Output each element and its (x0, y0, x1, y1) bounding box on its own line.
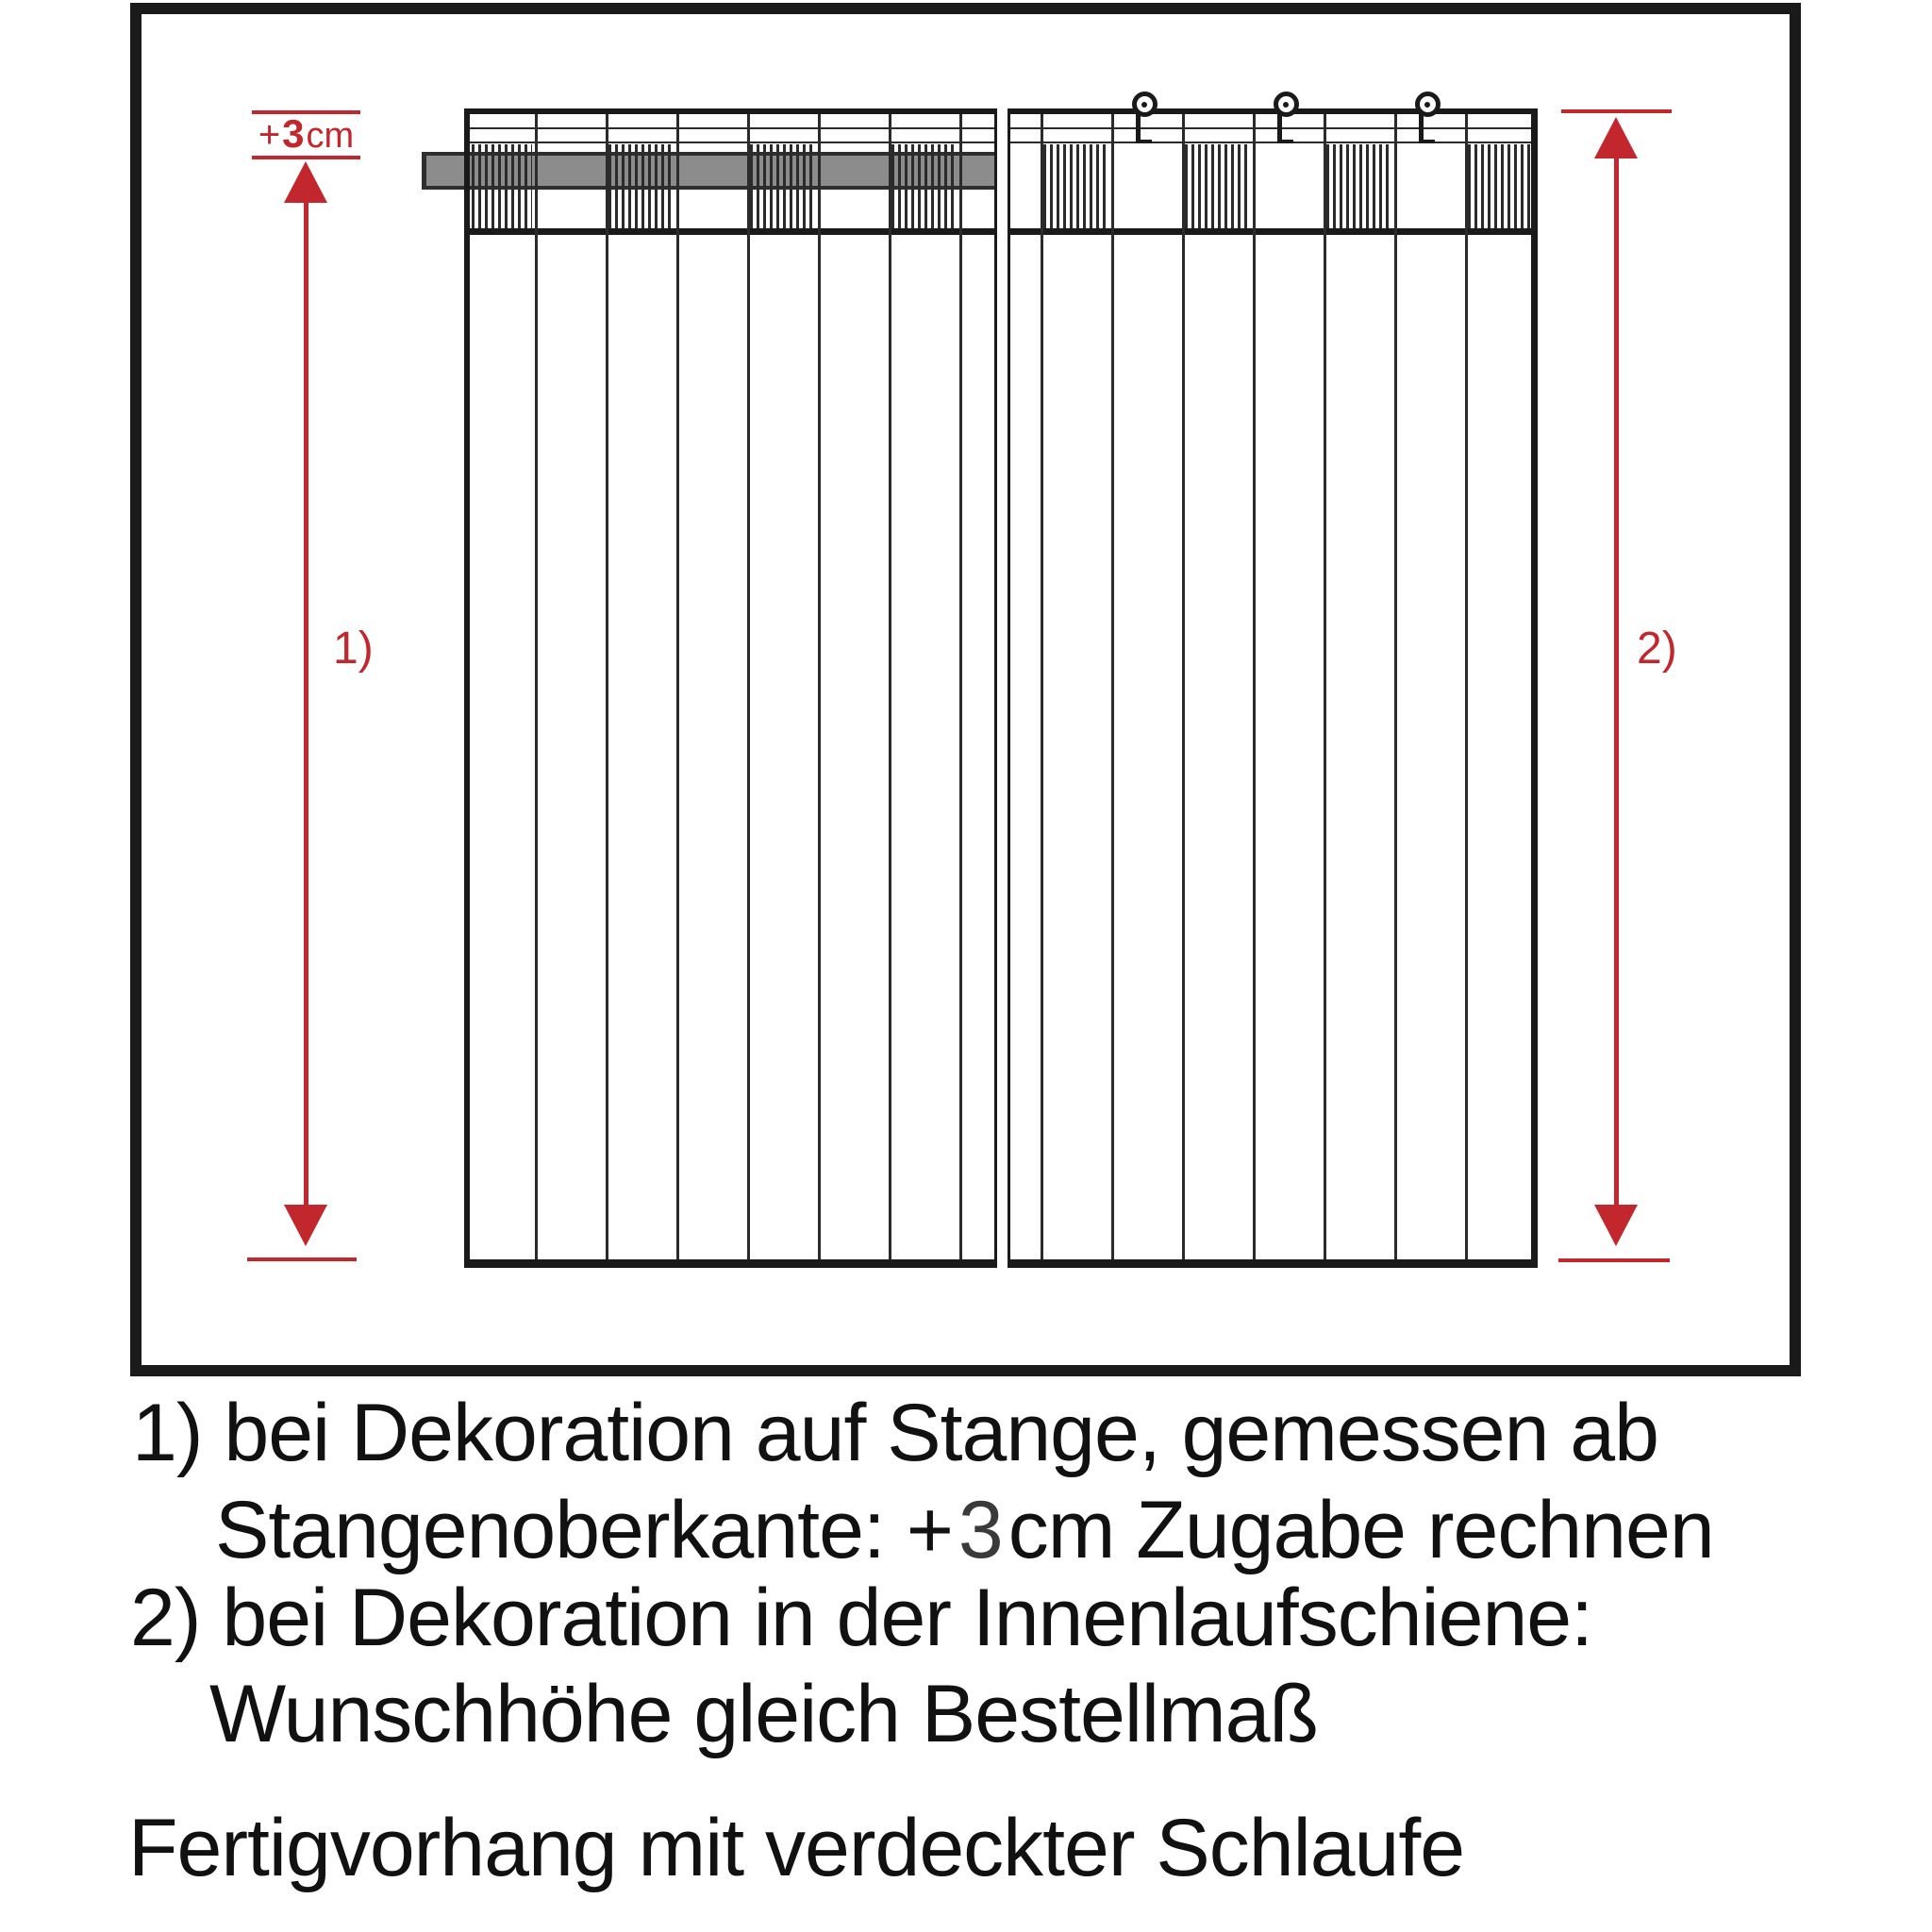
pleat-fold-line (606, 114, 608, 1259)
hidden-loop-hatch (750, 144, 815, 228)
header-seam-line (1008, 142, 1538, 143)
pleat-fold-line (1253, 114, 1256, 1259)
hidden-loop-hatch (608, 144, 674, 228)
pleat-fold-line (1111, 114, 1114, 1259)
header-seam-line (1008, 127, 1538, 129)
pleat-fold-line (1394, 114, 1397, 1259)
reference-line-curtain-top-right (1561, 109, 1672, 113)
header-bottom-seam (1008, 228, 1538, 235)
pleat-fold-line (1041, 114, 1043, 1259)
glider-stem (1136, 114, 1141, 142)
pleat-fold-line (889, 114, 891, 1259)
arrow1-shaft (304, 202, 308, 1206)
pleat-fold-line (676, 114, 679, 1259)
panel-outer-edge (1531, 108, 1538, 1268)
hidden-loop-hatch (891, 144, 957, 228)
pleat-fold-line (1182, 114, 1185, 1259)
hidden-loop-hatch (1326, 144, 1391, 228)
glider-foot (1277, 140, 1293, 143)
note-line-4: Wunschhöhe gleich Bestellmaß (209, 1670, 1318, 1759)
glider-foot (1419, 140, 1435, 143)
panel-top-edge (1008, 108, 1538, 114)
allowance-label: +3cm (252, 114, 360, 154)
glider-stem (1277, 114, 1282, 142)
pleat-fold-line (747, 114, 750, 1259)
panel-inner-edge (1008, 108, 1010, 1268)
hidden-loop-hatch (1468, 144, 1531, 228)
reference-line-hem-right (1558, 1258, 1670, 1262)
panel-inner-edge (994, 108, 997, 1268)
pleat-fold-line (1465, 114, 1468, 1259)
arrow2-head-down-icon (1594, 1205, 1638, 1246)
note-line-2-value: 3 (953, 1485, 1008, 1575)
note-line-2-suffix: cm Zugabe rechnen (1008, 1485, 1714, 1575)
glider-foot (1136, 140, 1152, 143)
pleat-fold-line (959, 114, 962, 1259)
pleat-fold-line (535, 114, 538, 1259)
note-line-1: 1) bei Dekoration auf Stange, gemessen a… (132, 1389, 1658, 1478)
panel-outer-edge (464, 108, 470, 1268)
curtain-measurement-diagram: +3cm 1) 2) 1) bei Dekoration auf Stange,… (0, 0, 1932, 1932)
glider-stem (1419, 114, 1424, 142)
arrow2-shaft (1614, 158, 1619, 1206)
hidden-loop-hatch (1043, 144, 1108, 228)
arrow1-head-down-icon (284, 1205, 327, 1246)
panel-top-edge (464, 108, 997, 114)
arrow1-head-up-icon (284, 161, 327, 203)
allowance-unit: cm (307, 116, 355, 156)
panel-bottom-hem (464, 1259, 997, 1268)
glider-dot-icon (1283, 102, 1289, 108)
pleat-fold-line (818, 114, 821, 1259)
glider-dot-icon (1141, 102, 1147, 108)
header-seam-line (464, 127, 997, 129)
arrow2-head-up-icon (1594, 117, 1638, 158)
note-line-2-prefix: Stangenoberkante: + (215, 1485, 953, 1575)
pleat-fold-line (1324, 114, 1326, 1259)
note-line-2: Stangenoberkante: +3cm Zugabe rechnen (215, 1486, 1714, 1575)
hidden-loop-hatch (1185, 144, 1250, 228)
header-seam-line (464, 142, 997, 143)
curtain-panel-right (1008, 108, 1538, 1268)
header-bottom-seam (464, 228, 997, 235)
hidden-loop-hatch (472, 144, 532, 228)
reference-line-hem-left (247, 1257, 357, 1261)
panel-bottom-hem (1008, 1259, 1538, 1268)
curtain-panel-left (464, 108, 997, 1268)
arrow1-label: 1) (333, 626, 374, 672)
allowance-value: 3 (280, 111, 306, 156)
allowance-plus: + (258, 114, 280, 156)
glider-dot-icon (1424, 102, 1430, 108)
arrow2-label: 2) (1637, 626, 1677, 672)
reference-line-rod-top (252, 156, 360, 159)
note-line-5: Fertigvorhang mit verdeckter Schlaufe (128, 1804, 1464, 1893)
note-line-3: 2) bei Dekoration in der Innenlaufschien… (130, 1574, 1592, 1663)
